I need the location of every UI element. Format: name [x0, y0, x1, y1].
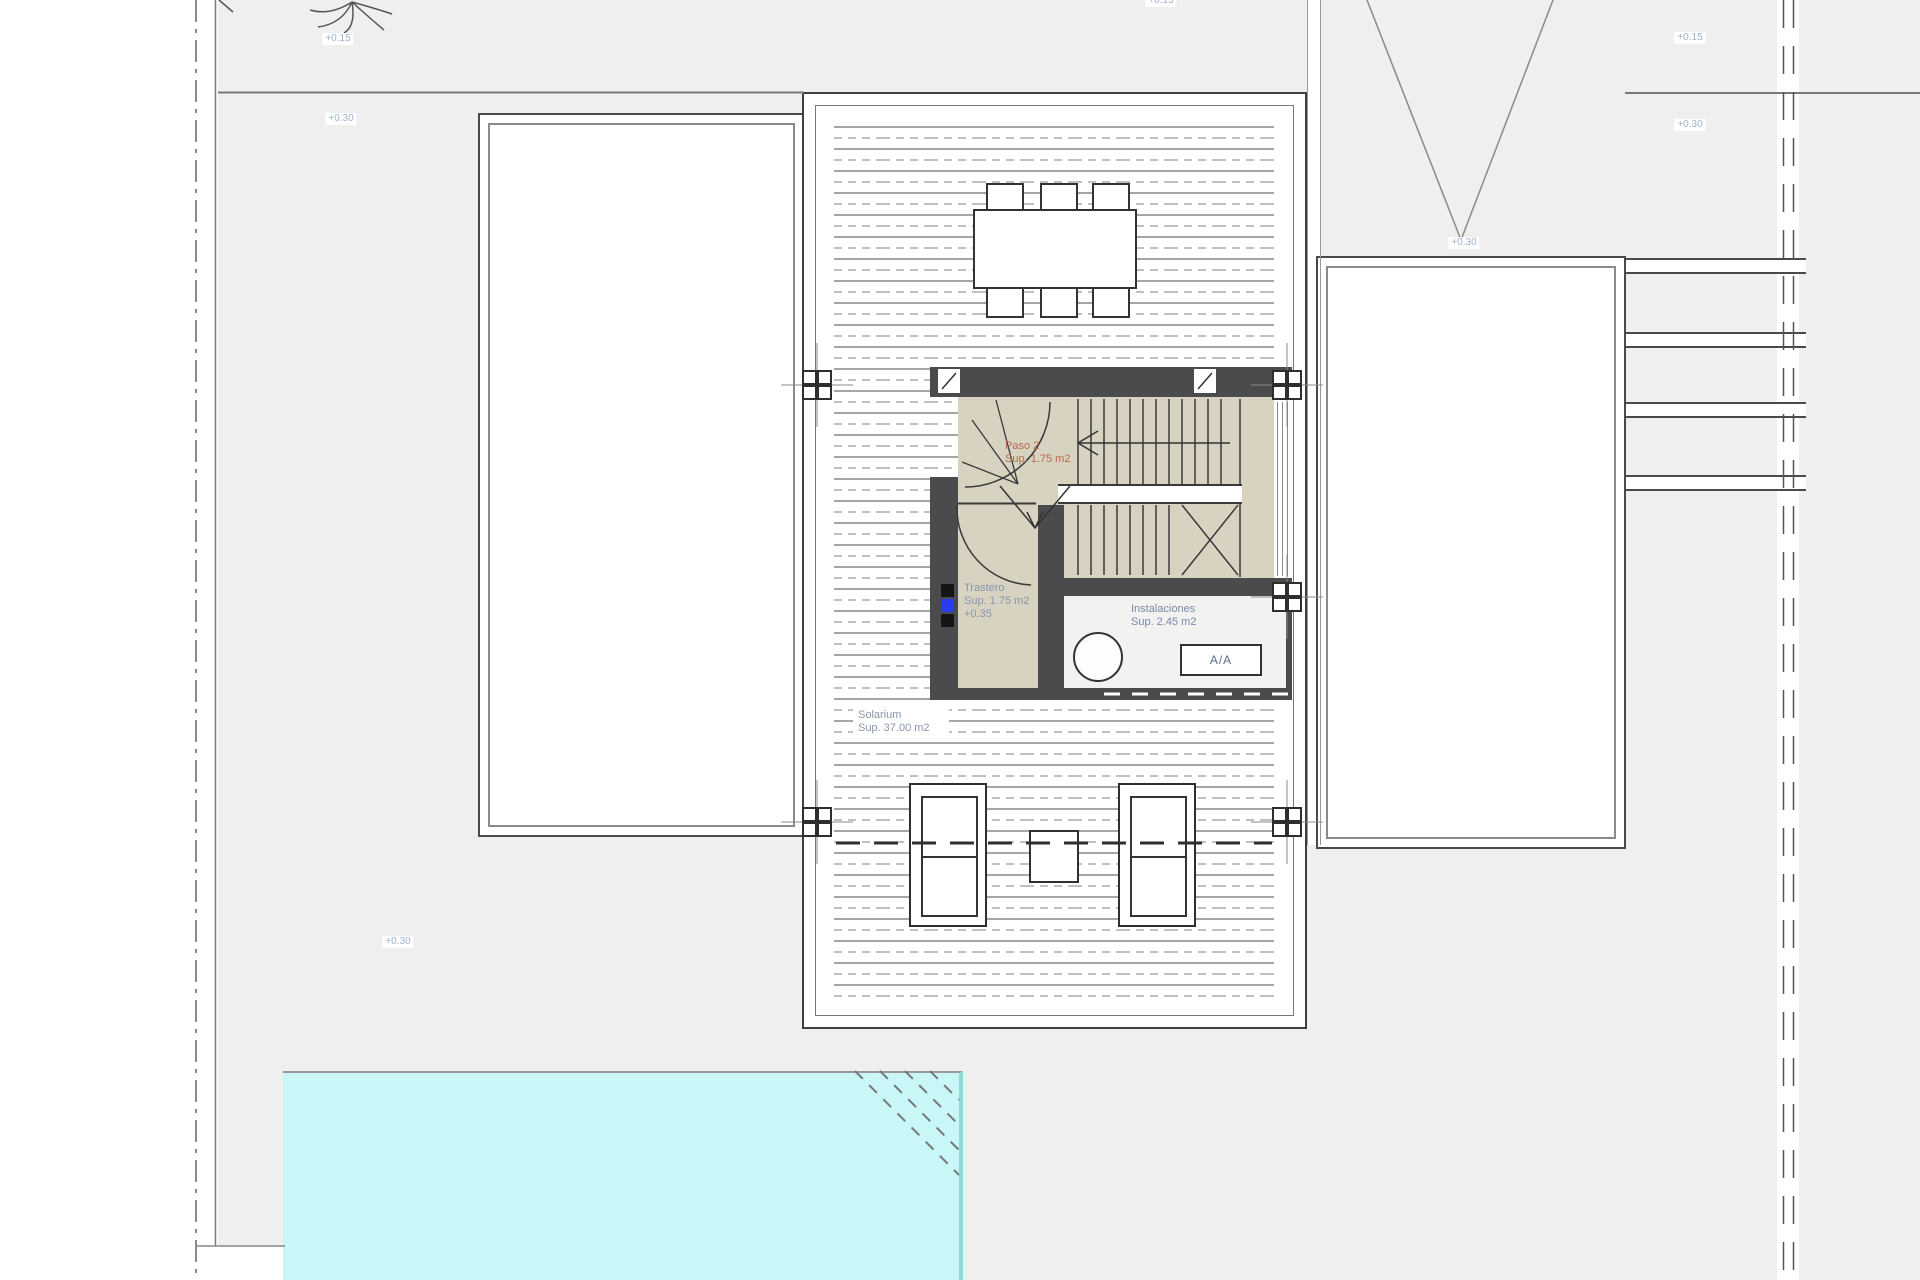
margin-corner — [216, 1247, 283, 1280]
room-area: Sup. 2.45 m2 — [1131, 616, 1196, 629]
room-area: Sup. 1.75 m2 — [1005, 453, 1070, 466]
sun-lounger-right-back — [1130, 796, 1187, 858]
room-label-paso2: Paso 2 Sup. 1.75 m2 — [1005, 440, 1070, 466]
room-name: Paso 2 — [1005, 440, 1070, 453]
dining-chair — [986, 287, 1024, 318]
left-building — [478, 113, 805, 837]
swimming-pool — [283, 1071, 963, 1280]
window-strip — [1274, 402, 1290, 576]
core-wall-under-stair — [1064, 578, 1292, 596]
ac-unit-box: A/A — [1180, 644, 1262, 676]
side-table — [1029, 830, 1079, 883]
room-level: +0.35 — [964, 608, 1029, 621]
right-building — [1316, 256, 1626, 849]
elevation-label: +0.30 — [325, 113, 356, 125]
core-wall-right-lower — [1286, 596, 1292, 688]
room-label-instalaciones: Instalaciones Sup. 2.45 m2 — [1131, 603, 1196, 629]
room-name: Trastero — [964, 582, 1029, 595]
step-band — [1622, 258, 1806, 274]
sun-lounger-left-back — [921, 796, 978, 858]
room-name: Solarium — [858, 709, 930, 722]
elevation-label: +0.15 — [322, 33, 353, 45]
elevation-label: +0.15 — [1145, 0, 1176, 7]
room-name: Instalaciones — [1131, 603, 1196, 616]
ac-unit-label: A/A — [1210, 653, 1232, 667]
floor-plan-canvas: A/A — [0, 0, 1920, 1280]
step-band — [1622, 402, 1806, 418]
dining-chair — [1040, 287, 1078, 318]
elevation-label: +0.30 — [1674, 119, 1705, 131]
step-band — [1622, 332, 1806, 348]
room-area: Sup. 37.00 m2 — [858, 722, 930, 735]
sun-lounger-left-seat — [921, 856, 978, 917]
core-wall-mid — [1038, 505, 1064, 688]
dining-chair — [1092, 287, 1130, 318]
elevation-label: +0.30 — [382, 936, 413, 948]
core-wall-bottom — [930, 688, 1292, 700]
elevation-label: +0.30 — [1448, 237, 1479, 249]
core-wall-top — [930, 367, 1292, 397]
dining-table — [973, 209, 1137, 289]
elevation-label: +0.15 — [1674, 32, 1705, 44]
room-label-solarium: Solarium Sup. 37.00 m2 — [858, 709, 930, 735]
sun-lounger-right-seat — [1130, 856, 1187, 917]
boundary-fence-strip — [1777, 0, 1799, 1280]
room-label-trastero: Trastero Sup. 1.75 m2 +0.35 — [964, 582, 1029, 621]
room-area: Sup. 1.75 m2 — [964, 595, 1029, 608]
core-wall-left — [930, 477, 958, 688]
step-band — [1622, 475, 1806, 491]
